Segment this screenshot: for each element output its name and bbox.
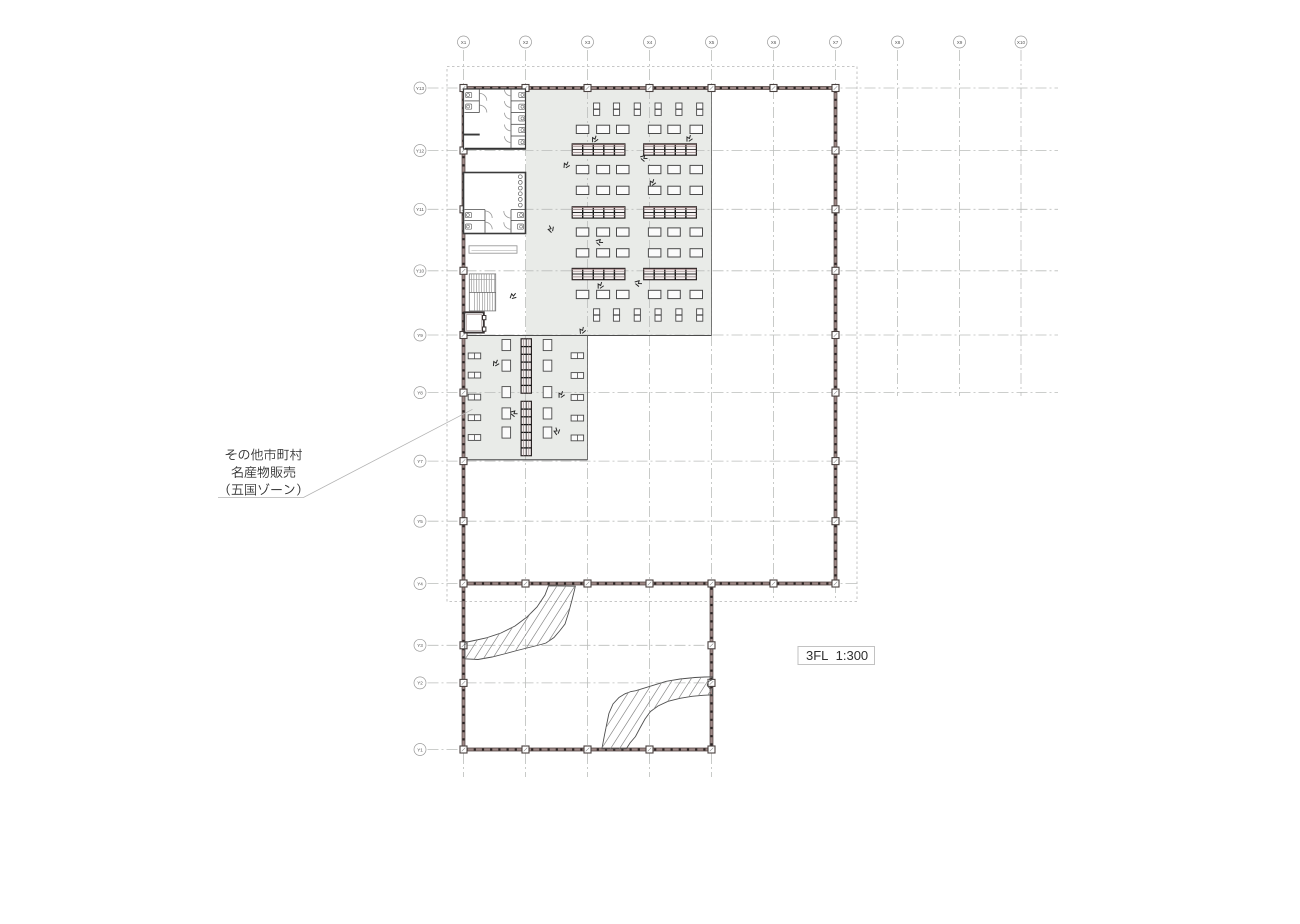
svg-text:Y8: Y8	[417, 390, 423, 395]
svg-text:Y13: Y13	[416, 86, 425, 91]
svg-text:X8: X8	[895, 40, 901, 45]
svg-text:X5: X5	[709, 40, 715, 45]
svg-text:X3: X3	[585, 40, 591, 45]
svg-text:Y2: Y2	[417, 681, 423, 686]
svg-text:Y4: Y4	[417, 581, 423, 586]
svg-text:Y7: Y7	[417, 459, 423, 464]
svg-text:X4: X4	[647, 40, 653, 45]
svg-text:Y1: Y1	[417, 747, 423, 752]
svg-text:Y11: Y11	[416, 207, 424, 212]
svg-text:X1: X1	[461, 40, 467, 45]
svg-text:Y12: Y12	[416, 148, 425, 153]
svg-text:Y5: Y5	[417, 519, 423, 524]
svg-text:X2: X2	[523, 40, 529, 45]
svg-text:X10: X10	[1017, 40, 1026, 45]
svg-text:Y3: Y3	[417, 643, 423, 648]
svg-text:X7: X7	[833, 40, 839, 45]
svg-text:Y10: Y10	[416, 269, 425, 274]
svg-text:3FL 1:300: 3FL 1:300	[806, 648, 868, 663]
svg-text:Y9: Y9	[417, 333, 423, 338]
svg-text:X6: X6	[771, 40, 777, 45]
svg-text:X9: X9	[957, 40, 963, 45]
